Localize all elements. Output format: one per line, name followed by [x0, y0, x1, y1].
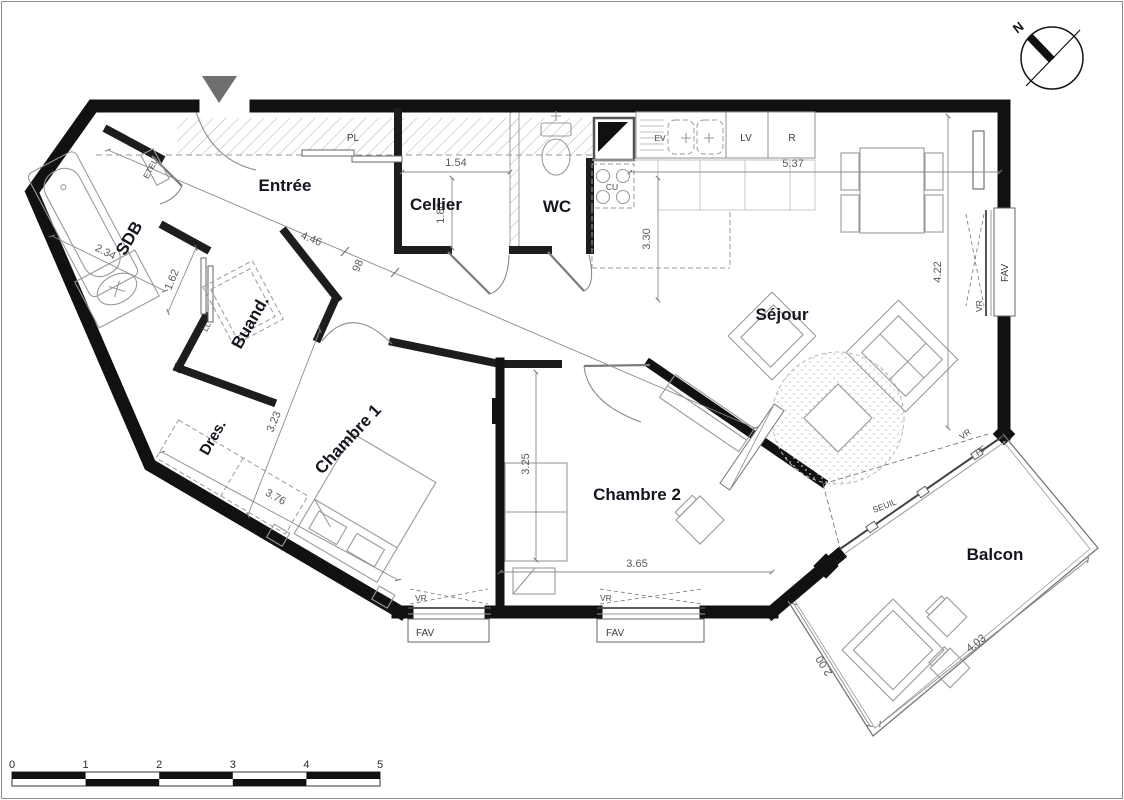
scale-tick-3: 3 [230, 759, 236, 771]
ev-label: EV [654, 133, 666, 143]
buand-sliding-door-2 [208, 266, 213, 322]
pl-label: PL [347, 133, 360, 144]
fav-label-chambre1: FAV [416, 628, 434, 639]
cu-label: CU [606, 182, 618, 192]
room-label-wc: WC [543, 197, 571, 216]
scale-tick-1: 1 [83, 759, 89, 771]
duct-block [492, 398, 501, 424]
room-label-sejour: Séjour [756, 305, 809, 324]
room-label-entree: Entrée [259, 176, 312, 195]
scale-tick-4: 4 [303, 759, 309, 771]
fav-label-sejour: FAV [1000, 264, 1011, 282]
fav-label-chambre2: FAV [606, 628, 624, 639]
dim-3-25: 3.25 [520, 453, 532, 474]
pl-sliding-door-2 [352, 156, 402, 162]
r-label: R [788, 133, 795, 144]
vr-label-sejour: VR [974, 300, 984, 312]
floor-plan-canvas: VR FAV VR FAV FAV VR SEUIL PF VR [0, 0, 1124, 800]
dim-3-65: 3.65 [626, 558, 647, 570]
room-label-chambre2: Chambre 2 [593, 485, 681, 504]
vr-label-chambre1: VR [415, 593, 427, 603]
window-panel-top-right [973, 131, 984, 189]
vr-label-chambre2: VR [600, 593, 612, 603]
dim-5-37: 5.37 [782, 158, 803, 170]
room-label-balcon: Balcon [967, 545, 1024, 564]
dim-4-22: 4.22 [932, 261, 944, 282]
pl-sliding-door [302, 150, 354, 156]
fav-box-sejour [994, 208, 1015, 316]
scale-tick-0: 0 [9, 759, 15, 771]
dim-3-30: 3.30 [641, 228, 653, 249]
chambre2-door-leaf [584, 365, 650, 366]
scale-tick-2: 2 [156, 759, 162, 771]
room-label-cellier: Cellier [410, 195, 462, 214]
scale-tick-5: 5 [377, 759, 383, 771]
lv-label: LV [740, 133, 752, 144]
dim-1-54: 1.54 [445, 157, 466, 169]
